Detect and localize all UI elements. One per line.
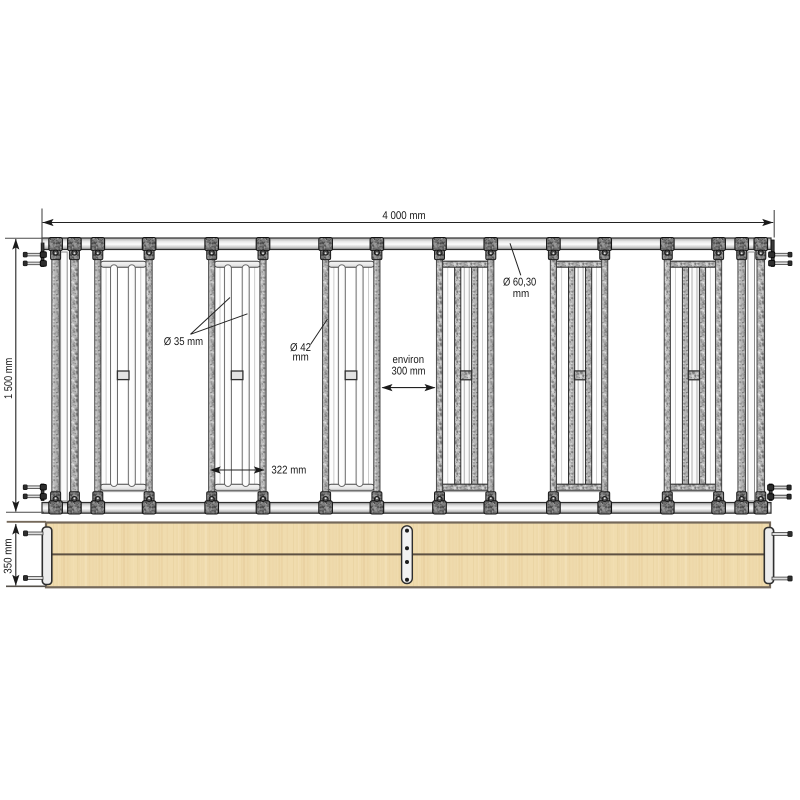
svg-text:mm: mm xyxy=(292,352,308,364)
svg-text:322 mm: 322 mm xyxy=(271,464,306,476)
svg-text:300 mm: 300 mm xyxy=(392,366,426,378)
svg-text:Ø 60,30: Ø 60,30 xyxy=(503,277,536,289)
svg-text:350 mm: 350 mm xyxy=(2,539,14,574)
svg-text:4 000 mm: 4 000 mm xyxy=(382,210,425,222)
svg-text:environ: environ xyxy=(393,354,425,366)
svg-text:mm: mm xyxy=(513,288,530,300)
svg-text:1 500 mm: 1 500 mm xyxy=(3,358,15,399)
svg-text:Ø 35 mm: Ø 35 mm xyxy=(164,336,203,348)
